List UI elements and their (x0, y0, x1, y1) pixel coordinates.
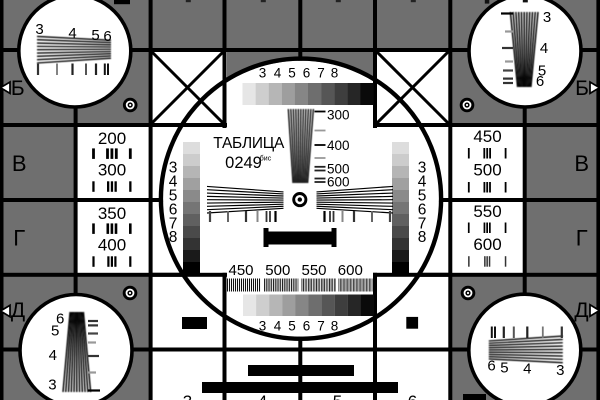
svg-text:450: 450 (473, 127, 501, 146)
svg-text:4: 4 (258, 392, 267, 400)
svg-text:3: 3 (259, 66, 267, 81)
svg-text:3: 3 (543, 9, 551, 26)
svg-text:Д: Д (574, 299, 588, 322)
svg-text:5: 5 (51, 322, 59, 339)
svg-text:3: 3 (35, 21, 43, 38)
svg-text:5: 5 (288, 319, 296, 334)
svg-text:4: 4 (68, 25, 76, 42)
svg-text:В: В (12, 151, 27, 176)
svg-text:4: 4 (540, 40, 548, 57)
svg-text:Д: Д (11, 299, 25, 322)
svg-text:500: 500 (265, 262, 290, 279)
svg-text:4: 4 (274, 319, 282, 334)
svg-text:300: 300 (98, 161, 126, 180)
svg-text:5: 5 (91, 27, 99, 44)
svg-text:400: 400 (98, 236, 126, 255)
svg-text:550: 550 (301, 262, 326, 279)
svg-text:600: 600 (473, 235, 501, 254)
svg-text:7: 7 (317, 319, 325, 334)
svg-text:В: В (574, 151, 589, 176)
svg-text:6: 6 (408, 392, 417, 400)
svg-text:450: 450 (228, 262, 253, 279)
svg-text:бис: бис (260, 155, 272, 163)
svg-text:350: 350 (98, 204, 126, 223)
svg-text:5: 5 (288, 66, 296, 81)
svg-text:Г: Г (576, 226, 588, 251)
svg-text:7: 7 (317, 66, 325, 81)
svg-text:500: 500 (473, 161, 501, 180)
svg-text:8: 8 (418, 229, 427, 246)
svg-text:Б: Б (575, 77, 589, 100)
svg-text:Г: Г (13, 226, 25, 251)
svg-text:6: 6 (487, 358, 495, 375)
svg-text:200: 200 (98, 129, 126, 148)
svg-text:4: 4 (49, 347, 57, 364)
svg-text:5: 5 (333, 392, 342, 400)
svg-text:4: 4 (523, 360, 531, 377)
svg-text:6: 6 (303, 66, 311, 81)
svg-text:3: 3 (48, 377, 56, 394)
svg-text:6: 6 (536, 73, 544, 90)
svg-text:0249: 0249 (225, 154, 262, 172)
svg-text:6: 6 (103, 28, 111, 45)
svg-text:5: 5 (500, 359, 508, 376)
svg-text:300: 300 (327, 108, 350, 123)
svg-text:8: 8 (331, 66, 339, 81)
svg-text:3: 3 (183, 392, 192, 400)
svg-text:3: 3 (556, 362, 564, 379)
svg-text:ТАБЛИЦА: ТАБЛИЦА (213, 135, 285, 152)
svg-text:8: 8 (331, 319, 339, 334)
svg-text:550: 550 (473, 202, 501, 221)
svg-text:Б: Б (11, 77, 25, 100)
svg-text:6: 6 (303, 319, 311, 334)
svg-text:600: 600 (338, 262, 363, 279)
svg-text:4: 4 (274, 66, 282, 81)
svg-text:400: 400 (327, 138, 350, 153)
svg-text:600: 600 (327, 175, 350, 190)
